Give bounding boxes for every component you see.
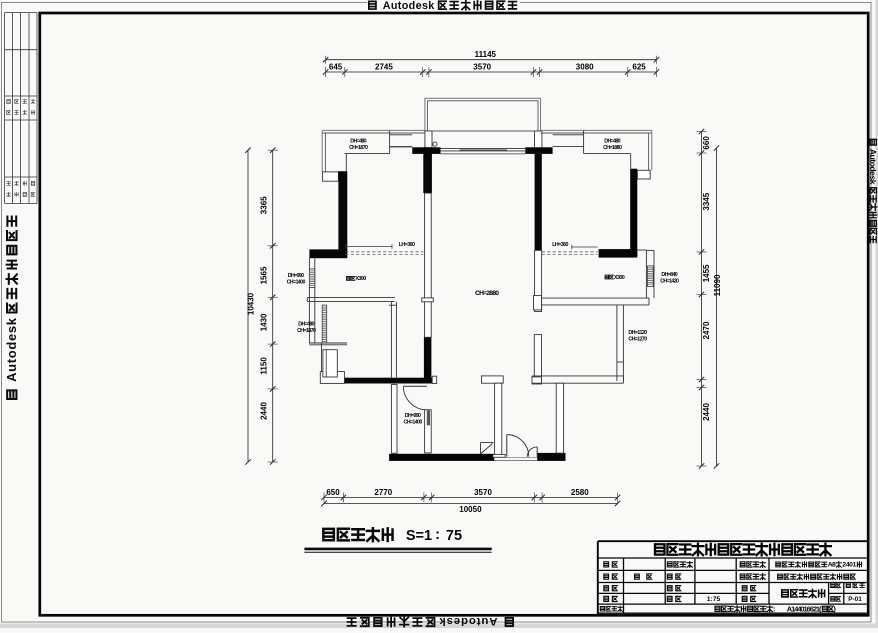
svg-text:DH=990: DH=990	[405, 413, 421, 419]
svg-text:Autodesk: Autodesk	[439, 615, 498, 627]
svg-text:X300: X300	[355, 276, 366, 282]
svg-text:2440: 2440	[702, 403, 711, 421]
svg-text:11090: 11090	[713, 274, 722, 296]
svg-text:3570: 3570	[474, 488, 492, 497]
svg-text:CH=1870: CH=1870	[297, 328, 316, 334]
svg-text:625: 625	[632, 62, 646, 71]
svg-text:A8: A8	[828, 562, 836, 569]
svg-text:CH=1400: CH=1400	[287, 279, 306, 285]
svg-text:10050: 10050	[459, 505, 482, 514]
svg-text:DH=480: DH=480	[298, 321, 314, 327]
svg-text:A144016621(: A144016621(	[787, 604, 822, 613]
svg-text:Autodesk: Autodesk	[383, 0, 436, 12]
svg-text:CH=1270: CH=1270	[628, 337, 647, 343]
svg-text:CH=1400: CH=1400	[404, 419, 423, 425]
svg-text:75: 75	[446, 528, 462, 544]
svg-text:3345: 3345	[702, 192, 711, 210]
svg-text:2745: 2745	[375, 62, 393, 71]
svg-text:DH=480: DH=480	[604, 138, 620, 144]
svg-text:2401: 2401	[842, 562, 856, 569]
svg-text:1150: 1150	[260, 357, 269, 375]
svg-text:3570: 3570	[473, 62, 491, 71]
svg-text:DH=990: DH=990	[288, 273, 304, 279]
svg-text:11145: 11145	[475, 50, 497, 59]
svg-text:CH=1870: CH=1870	[349, 145, 368, 151]
svg-text:DH=840: DH=840	[661, 272, 677, 278]
svg-text:CH=2880: CH=2880	[475, 290, 499, 297]
svg-text:1430: 1430	[260, 313, 269, 331]
svg-text:LH=360: LH=360	[552, 242, 568, 248]
svg-text:P-01: P-01	[848, 596, 862, 603]
svg-text:2770: 2770	[374, 488, 392, 497]
svg-text:1:75: 1:75	[707, 596, 721, 603]
svg-text:645: 645	[329, 62, 343, 71]
svg-text::: :	[435, 527, 440, 543]
svg-text:3080: 3080	[576, 62, 594, 71]
svg-text:CH=1880: CH=1880	[603, 145, 622, 151]
svg-text:DH=480: DH=480	[350, 138, 366, 144]
svg-text:Autodesk: Autodesk	[868, 149, 878, 185]
svg-text:10430: 10430	[247, 292, 256, 315]
svg-text:Autodesk: Autodesk	[4, 317, 19, 382]
svg-text::: :	[773, 604, 775, 613]
svg-text:1455: 1455	[702, 264, 711, 282]
svg-text:X300: X300	[614, 275, 625, 281]
svg-text:CH=1420: CH=1420	[660, 279, 679, 285]
svg-text:2440: 2440	[260, 402, 269, 420]
svg-text:1565: 1565	[260, 266, 269, 284]
svg-text:650: 650	[326, 488, 340, 497]
svg-text:660: 660	[702, 136, 711, 150]
svg-text:2580: 2580	[571, 488, 589, 497]
svg-text:S=1: S=1	[406, 528, 432, 544]
svg-text:2470: 2470	[702, 321, 711, 339]
svg-text:DH=1120: DH=1120	[628, 330, 647, 336]
svg-text:LH=360: LH=360	[399, 242, 415, 248]
svg-text:3365: 3365	[260, 196, 269, 214]
